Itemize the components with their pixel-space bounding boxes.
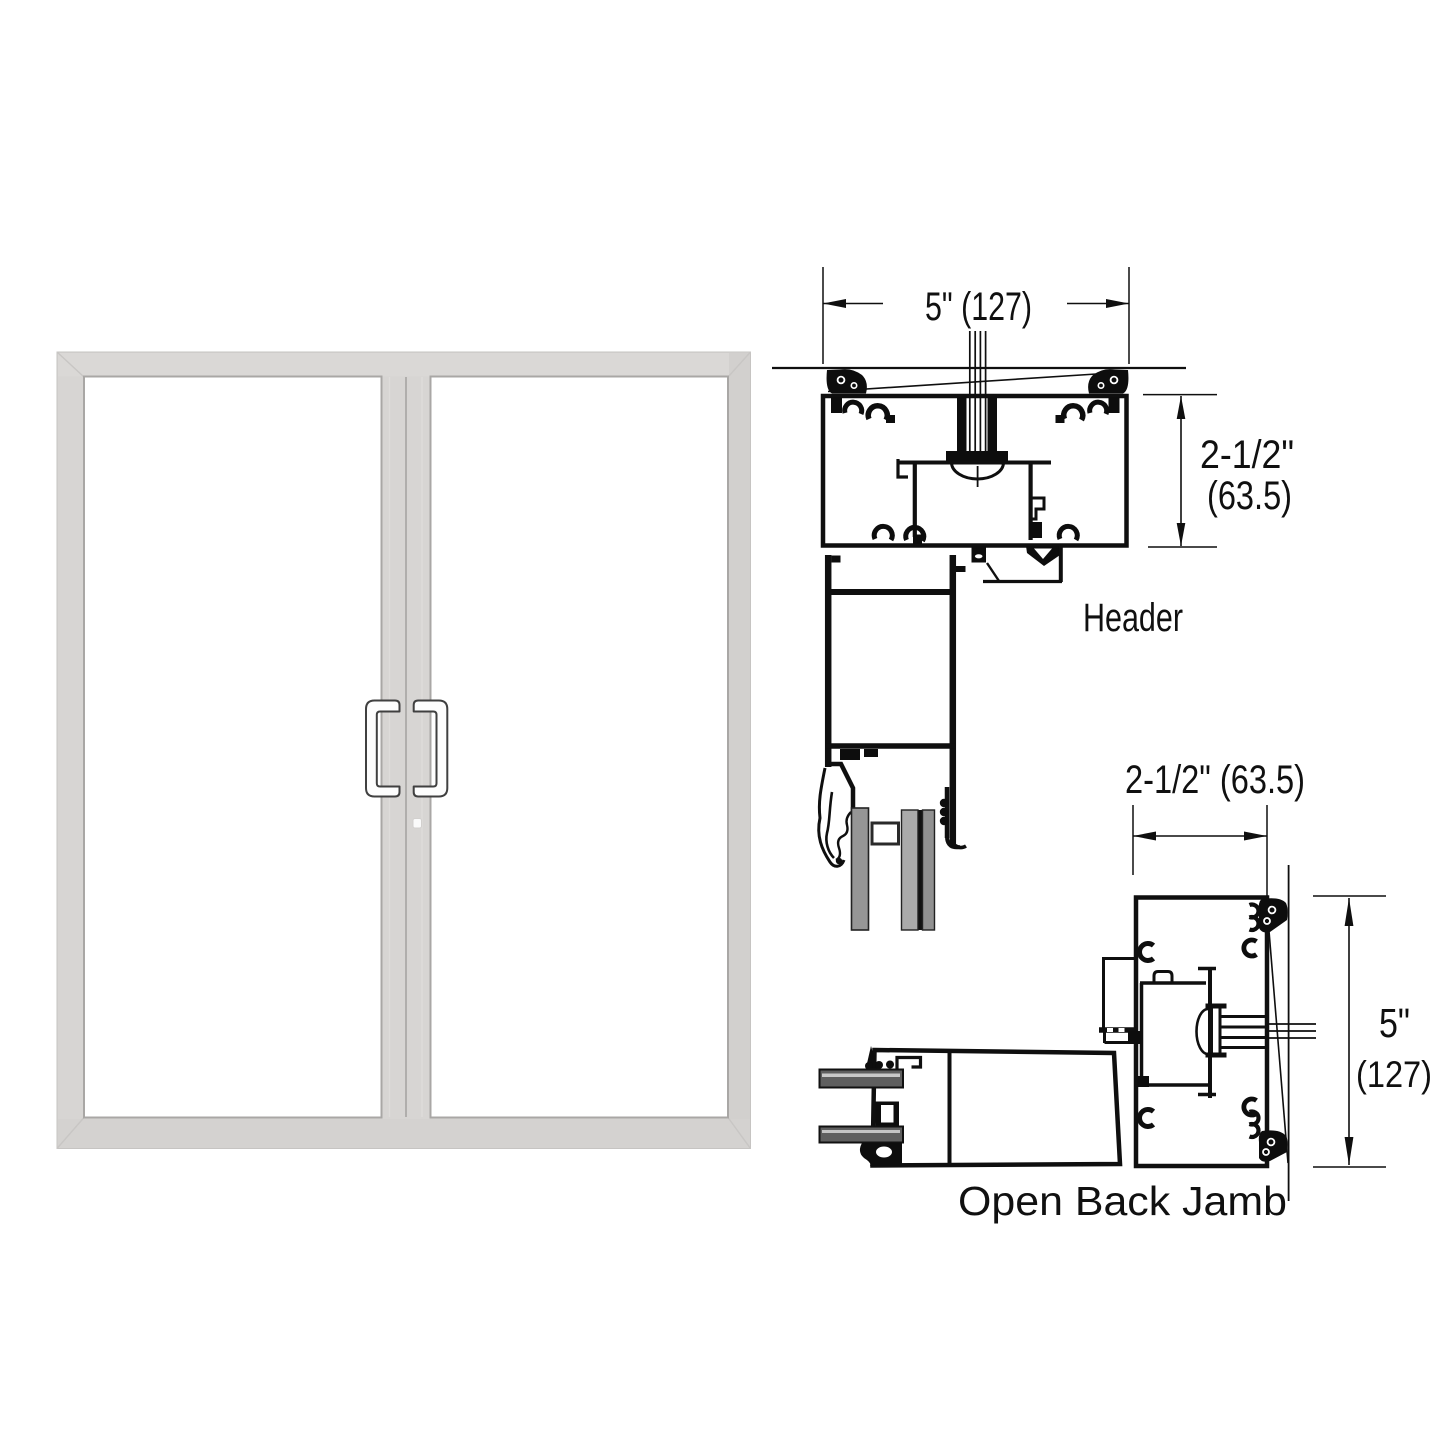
svg-text:5" (127): 5" (127) <box>925 285 1032 329</box>
svg-text:2-1/2" (63.5): 2-1/2" (63.5) <box>1125 758 1305 802</box>
svg-text:2-1/2": 2-1/2" <box>1200 433 1294 477</box>
svg-text:5": 5" <box>1379 1000 1410 1046</box>
svg-text:Open Back Jamb: Open Back Jamb <box>958 1178 1287 1224</box>
svg-text:(127): (127) <box>1356 1054 1432 1095</box>
svg-text:(63.5): (63.5) <box>1207 474 1292 518</box>
svg-text:Header: Header <box>1083 596 1183 640</box>
